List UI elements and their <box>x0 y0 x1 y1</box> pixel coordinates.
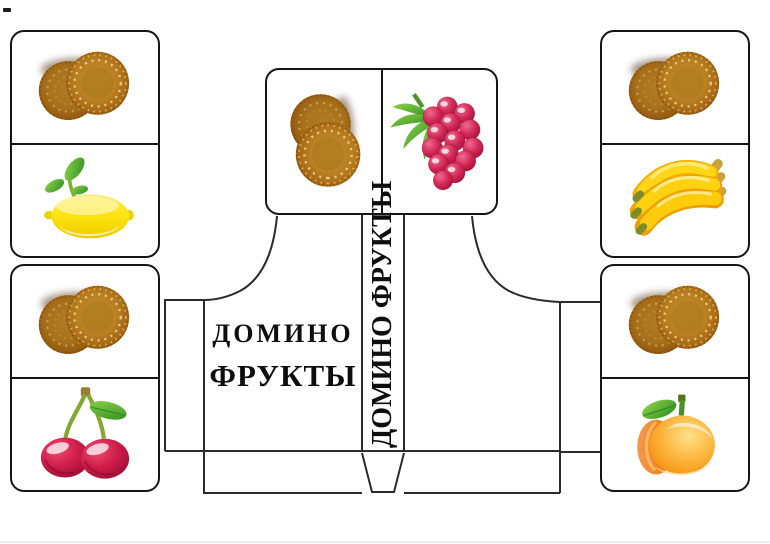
banana-image <box>605 148 745 253</box>
kiwi-image <box>265 88 392 196</box>
domino-tile-left-bottom <box>10 264 160 492</box>
kiwi-image <box>605 269 745 374</box>
fruit-cell <box>602 377 748 490</box>
lemon-image <box>15 148 155 253</box>
fruit-cell <box>12 377 158 490</box>
cherry-image <box>15 382 155 487</box>
apricot-image <box>605 382 745 487</box>
fruit-cell <box>267 70 381 213</box>
box-spine-title: ДОМИНО ФРУКТЫ <box>366 218 400 448</box>
bottom-left-flap <box>204 451 362 493</box>
page-bottom-edge <box>0 541 770 543</box>
fruit-cell <box>12 266 158 377</box>
box-front-title-line1: ДОМИНО <box>204 318 362 349</box>
domino-tile-right-bottom <box>600 264 750 492</box>
fruit-cell <box>602 143 748 256</box>
kiwi-image <box>15 35 155 140</box>
fruit-cell <box>602 266 748 377</box>
fruit-cell <box>12 32 158 143</box>
print-registration-mark <box>3 8 11 12</box>
left-shoulder-curve <box>204 216 277 300</box>
domino-tile-right-top <box>600 30 750 258</box>
fruit-cell <box>12 143 158 256</box>
kiwi-image <box>605 35 745 140</box>
raspberry-image <box>386 73 494 210</box>
domino-tile-left-top <box>10 30 160 258</box>
right-shoulder-curve <box>472 216 600 302</box>
fruit-cell <box>602 32 748 143</box>
box-front-title-line2: ФРУКТЫ <box>204 357 362 394</box>
left-glue-flap <box>165 300 204 451</box>
tuck-tab <box>362 453 404 492</box>
worksheet-page: ДОМИНО ФРУКТЫ ДОМИНО ФРУКТЫ <box>0 0 770 544</box>
kiwi-image <box>15 269 155 374</box>
